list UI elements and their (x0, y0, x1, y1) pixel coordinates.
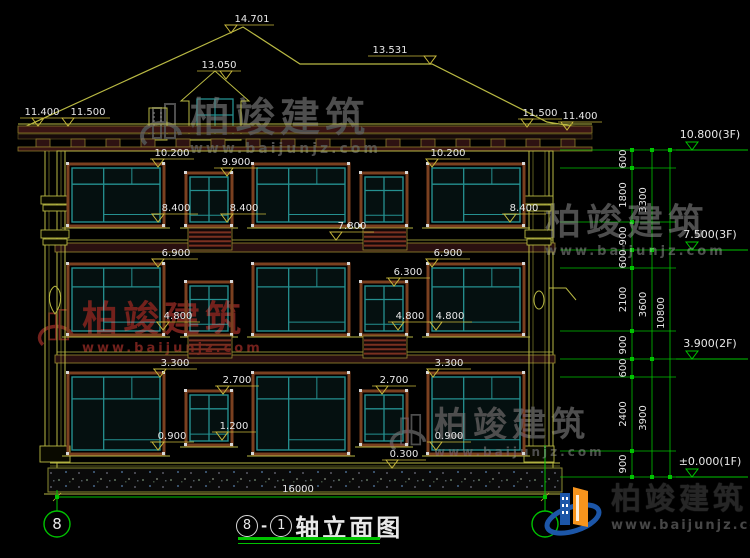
axis-bubble-left: 8 (44, 511, 70, 537)
elevation-value: 6.900 (434, 248, 463, 259)
title-underline-thick (238, 537, 380, 540)
window-large (422, 262, 530, 337)
floor-band-2f (55, 240, 555, 252)
elevation-marker-dormer-peak: 13.050 (197, 60, 241, 79)
roof (20, 27, 591, 140)
elevation-value: 4.800 (436, 311, 465, 322)
elevation-value: 13.531 (373, 45, 408, 56)
dentil-row (36, 139, 575, 147)
dim-segment: 1800 (618, 182, 629, 207)
elevation-value: 4.800 (164, 311, 193, 322)
window-large (422, 371, 530, 456)
dentil (316, 139, 330, 147)
elevation-value: 10.200 (155, 148, 190, 159)
elevation-marker-eave-left-inner: 11.500 (62, 107, 110, 126)
level-mark-label: 10.800(3F) (680, 128, 740, 141)
dentil (71, 139, 85, 147)
right-dimension-chain: 6001800900600210090060024009003300360039… (560, 148, 676, 479)
window-large (247, 262, 355, 337)
title-axis-bubble-from: 8 (236, 515, 258, 537)
elevation-marker-roof-peak: 14.701 (225, 14, 274, 33)
dim-segment: 600 (618, 149, 629, 168)
dim-floor-height: 3900 (638, 405, 649, 430)
dim-segment: 600 (618, 249, 629, 268)
title-axis-bubble-to: 1 (270, 515, 292, 537)
window-small (355, 389, 413, 447)
dim-floor-height: 3300 (638, 187, 649, 212)
window-large (62, 371, 170, 456)
cornice (18, 124, 592, 151)
level-mark-label: 3.900(2F) (683, 337, 736, 350)
company-logo-icon (543, 477, 605, 541)
window-large (247, 371, 355, 456)
dim-segment: 600 (618, 358, 629, 377)
elevation-drawing: 6001800900600210090060024009003300360039… (0, 0, 750, 558)
elevation-marker-eave-left-outer: 11.400 (20, 107, 64, 126)
company-logo-brand: 柏竣建筑 (611, 485, 750, 515)
pilaster-ornament (534, 291, 544, 309)
elevation-value: 11.500 (71, 107, 106, 118)
dentil (491, 139, 505, 147)
dentil (351, 139, 365, 147)
elevation-value: 0.300 (390, 449, 419, 460)
dentil (526, 139, 540, 147)
dim-segment: 900 (618, 335, 629, 354)
flower-box (363, 228, 407, 250)
window-small (355, 171, 413, 228)
elevation-marker-roof-ridge-right: 13.531 (368, 45, 436, 64)
dim-segment: 2400 (618, 401, 629, 426)
elevation-value: 3.300 (161, 358, 190, 369)
window-large (247, 162, 355, 228)
level-mark: 3.900(2F) (676, 337, 748, 359)
window-small (180, 280, 238, 337)
dentil (456, 139, 470, 147)
company-logo: 柏竣建筑 www.baijunjz.com (543, 477, 750, 541)
elevation-value: 0.900 (158, 431, 187, 442)
dim-total-height: 10800 (656, 297, 667, 329)
elevation-value: 8.400 (230, 203, 259, 214)
elevation-value: 11.400 (563, 111, 598, 122)
flower-box (188, 336, 232, 358)
cad-canvas: 6001800900600210090060024009003300360039… (0, 0, 750, 558)
dim-segment: 2100 (618, 287, 629, 312)
title-axis-separator: - (261, 517, 267, 535)
dentil (561, 139, 575, 147)
dentil (176, 139, 190, 147)
dentil (36, 139, 50, 147)
elevation-value: 8.400 (510, 203, 539, 214)
right-pilaster (524, 151, 576, 462)
elevation-value: 2.700 (223, 375, 252, 386)
elevation-value: 4.800 (396, 311, 425, 322)
elevation-value: 2.700 (380, 375, 409, 386)
flower-box (363, 336, 407, 358)
elevation-value: 13.050 (202, 60, 237, 71)
level-marks: 10.800(3F)7.500(3F)3.900(2F)±0.000(1F) (676, 128, 748, 477)
pilaster-ornament (49, 286, 60, 314)
window-large (62, 262, 170, 337)
elevation-value: 14.701 (235, 14, 270, 25)
window-small (180, 389, 238, 447)
left-pilaster (40, 151, 70, 462)
dim-floor-height: 3600 (638, 292, 649, 317)
level-mark: 7.500(3F) (676, 228, 748, 250)
dentil (246, 139, 260, 147)
elevation-value: 9.900 (222, 157, 251, 168)
elevation-value: 3.300 (435, 358, 464, 369)
windows (62, 162, 530, 456)
level-mark-label: ±0.000(1F) (679, 455, 742, 468)
elevation-value: 11.400 (25, 107, 60, 118)
dentil (421, 139, 435, 147)
dentil (141, 139, 155, 147)
elevation-marker-plinth-top: 0.300 (382, 449, 426, 468)
dentil (386, 139, 400, 147)
axis-bubble-left-label: 8 (52, 515, 62, 533)
dim-segment: 900 (618, 226, 629, 245)
window-small (355, 280, 413, 337)
level-mark-label: 7.500(3F) (683, 228, 736, 241)
dim-segment: 900 (618, 454, 629, 473)
company-logo-url: www.baijunjz.com (611, 518, 750, 533)
dentil (106, 139, 120, 147)
elevation-value: 1.200 (220, 421, 249, 432)
window-large (62, 162, 170, 228)
elevation-value: 10.200 (431, 148, 466, 159)
level-mark: 10.800(3F) (676, 128, 748, 150)
elevation-value: 11.500 (523, 108, 558, 119)
level-mark: ±0.000(1F) (676, 455, 748, 477)
bottom-dimension-label: 16000 (282, 484, 314, 495)
roof-outline (20, 27, 591, 129)
floor-band-1f (55, 352, 555, 363)
flower-box (188, 228, 232, 250)
dentil (281, 139, 295, 147)
elevation-value: 7.800 (338, 221, 367, 232)
elevation-value: 8.400 (162, 203, 191, 214)
elevation-value: 6.300 (394, 267, 423, 278)
window-large (422, 162, 530, 228)
dentil (211, 139, 225, 147)
elevation-value: 6.900 (162, 248, 191, 259)
elevation-value: 0.900 (435, 431, 464, 442)
title-underline-thin (238, 543, 380, 544)
